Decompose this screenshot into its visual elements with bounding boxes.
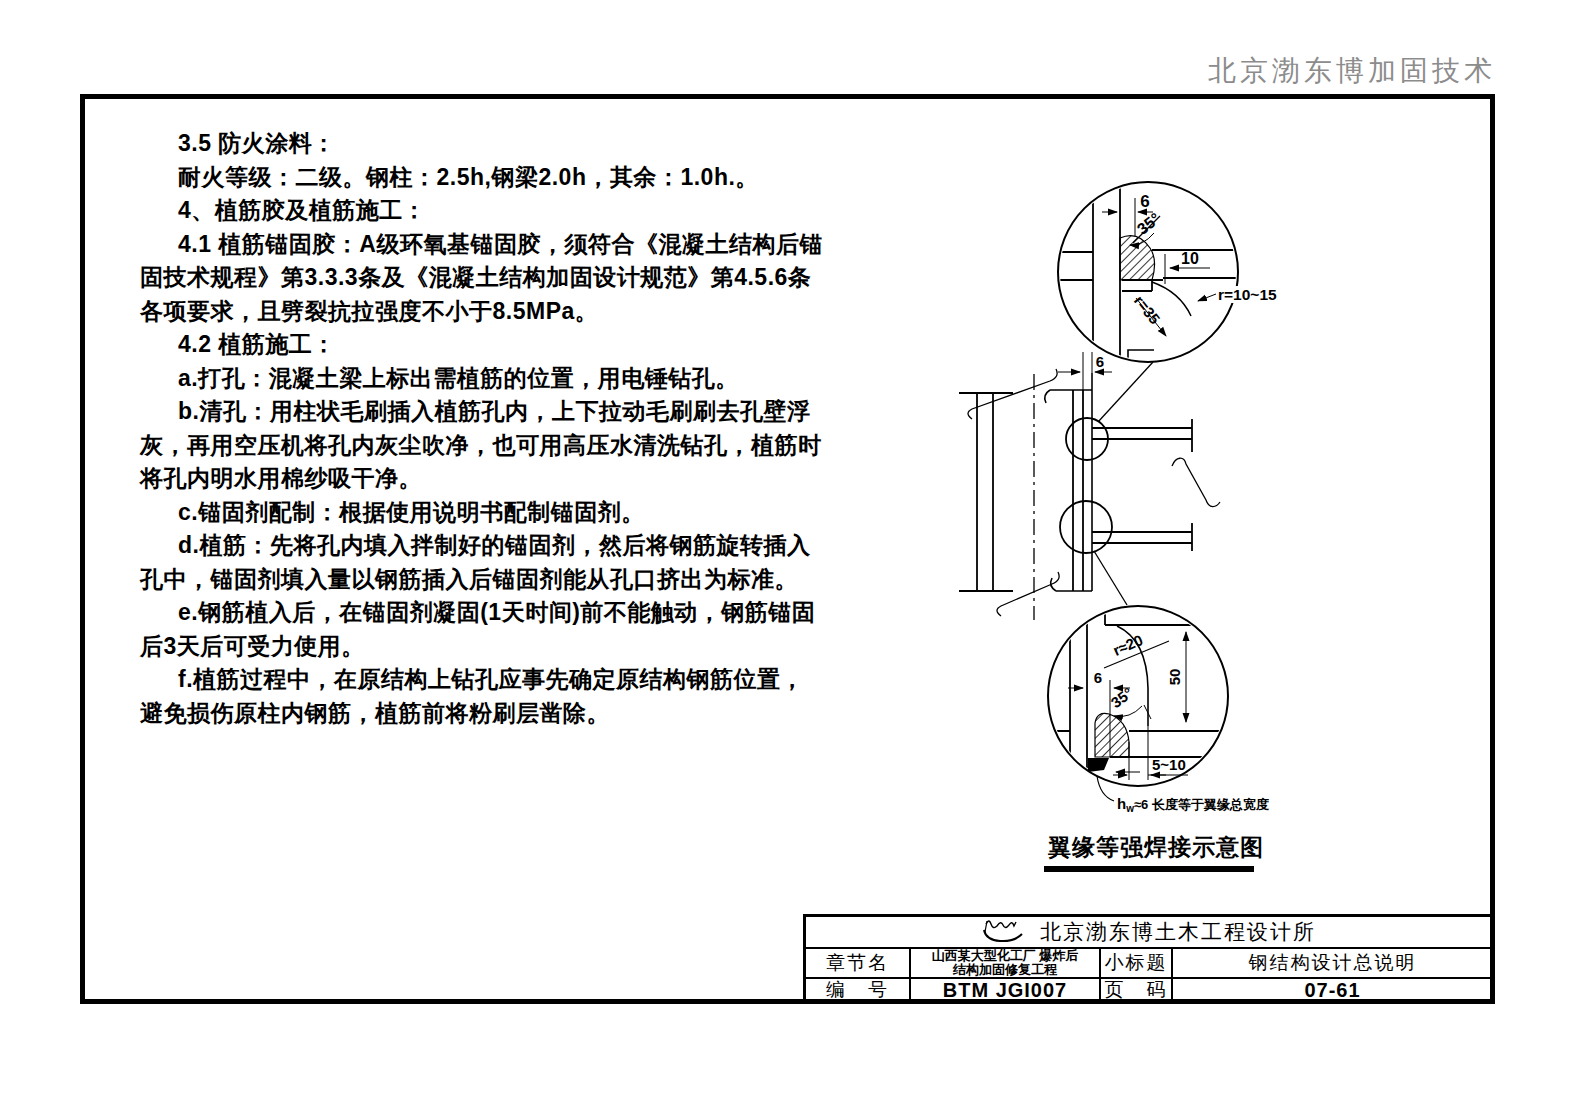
note-line: 避免损伤原柱内钢筋，植筋前将粉刷层凿除。: [140, 697, 800, 731]
number-value: BTM JGI007: [909, 977, 1099, 1001]
dim-mid-gap: 6: [1096, 353, 1104, 370]
title-block: 北京渤东博土木工程设计所 章节名 山西某大型化工厂 爆炸后 结构加固修复工程 小…: [803, 914, 1495, 1004]
header-company-tag: 北京渤东博加固技术: [1208, 52, 1496, 90]
subtitle-label: 小标题: [1099, 947, 1171, 977]
dim-top-gap: 6: [1140, 192, 1149, 211]
note-line: e.钢筋植入后，在锚固剂凝固(1天时间)前不能触动，钢筋锚固: [140, 596, 800, 630]
number-label: 编 号: [806, 977, 909, 1001]
weld-size-note: hw≈6 长度等于翼缘总宽度: [1117, 795, 1270, 814]
note-line: 后3天后可受力使用。: [140, 630, 800, 664]
dim-top-angle: 35°: [1134, 210, 1164, 238]
page-value: 07-61: [1171, 977, 1492, 1001]
note-line: 耐火等级：二级。钢柱：2.5h,钢梁2.0h，其余：1.0h.。: [140, 161, 800, 195]
detail-marker-bottom: [1060, 501, 1112, 553]
note-line: 将孔内明水用棉纱吸干净。: [140, 462, 800, 496]
top-leader-line: [1098, 362, 1153, 422]
note-line: f.植筋过程中，在原结构上钻孔应事先确定原结构钢筋位置，: [140, 663, 800, 697]
note-line: 4.2 植筋施工：: [140, 328, 800, 362]
chapter-value: 山西某大型化工厂 爆炸后 结构加固修复工程: [909, 947, 1099, 977]
dim-top-backing: 10: [1181, 250, 1199, 267]
note-line: 各项要求，且劈裂抗拉强度不小于8.5MPa。: [140, 295, 800, 329]
weld-diagram: 6 35° 10 r=35 r=10~15: [930, 140, 1475, 880]
note-line: a.打孔：混凝土梁上标出需植筋的位置，用电锤钻孔。: [140, 362, 800, 396]
dim-top-radius-note: r=10~15: [1218, 286, 1277, 303]
top-detail-circle: 6 35° 10 r=35 r=10~15: [1058, 182, 1285, 362]
dim-bot-backing: 5~10: [1152, 756, 1186, 773]
note-line: 4.1 植筋锚固胶：A级环氧基锚固胶，须符合《混凝土结构后锚: [140, 228, 800, 262]
note-line: d.植筋：先将孔内填入拌制好的锚固剂，然后将钢筋旋转插入: [140, 529, 800, 563]
dim-bot-radius: r≈20: [1110, 631, 1145, 659]
dim-top-radius-web: r=35: [1131, 292, 1164, 327]
backing-bar: [1088, 758, 1109, 772]
chapter-label: 章节名: [806, 947, 909, 977]
caption-underline: [1044, 866, 1254, 872]
dim-bot-height: 50: [1166, 669, 1183, 686]
note-line: 灰，再用空压机将孔内灰尘吹净，也可用高压水清洗钻孔，植筋时: [140, 429, 800, 463]
top-weld: [1120, 236, 1155, 280]
spec-notes: 3.5 防火涂料：耐火等级：二级。钢柱：2.5h,钢梁2.0h，其余：1.0h.…: [140, 127, 800, 730]
note-line: c.锚固剂配制：根据使用说明书配制锚固剂。: [140, 496, 800, 530]
diagram-caption: 翼缘等强焊接示意图: [1048, 832, 1258, 863]
page-label: 页 码: [1099, 977, 1171, 1001]
joint-elevation: [959, 369, 1220, 620]
design-office-logo: [982, 918, 1028, 946]
note-line: 固技术规程》第3.3.3条及《混凝土结构加固设计规范》第4.5.6条: [140, 261, 800, 295]
design-office-name: 北京渤东博土木工程设计所: [1040, 918, 1316, 946]
bottom-leader-line: [1094, 551, 1127, 605]
subtitle-value: 钢结构设计总说明: [1171, 947, 1492, 977]
dim-bot-angle: 35°: [1108, 684, 1136, 711]
bottom-detail-circle: r≈20 50 6 35° 5~10: [1048, 606, 1228, 786]
note-line: b.清孔：用柱状毛刷插入植筋孔内，上下拉动毛刷刷去孔壁浮: [140, 395, 800, 429]
note-line: 4、植筋胶及植筋施工：: [140, 194, 800, 228]
dim-bot-gap: 6: [1094, 669, 1102, 686]
bottom-weld: [1095, 713, 1129, 757]
note-line: 孔中，锚固剂填入量以钢筋插入后锚固剂能从孔口挤出为标准。: [140, 563, 800, 597]
note-line: 3.5 防火涂料：: [140, 127, 800, 161]
